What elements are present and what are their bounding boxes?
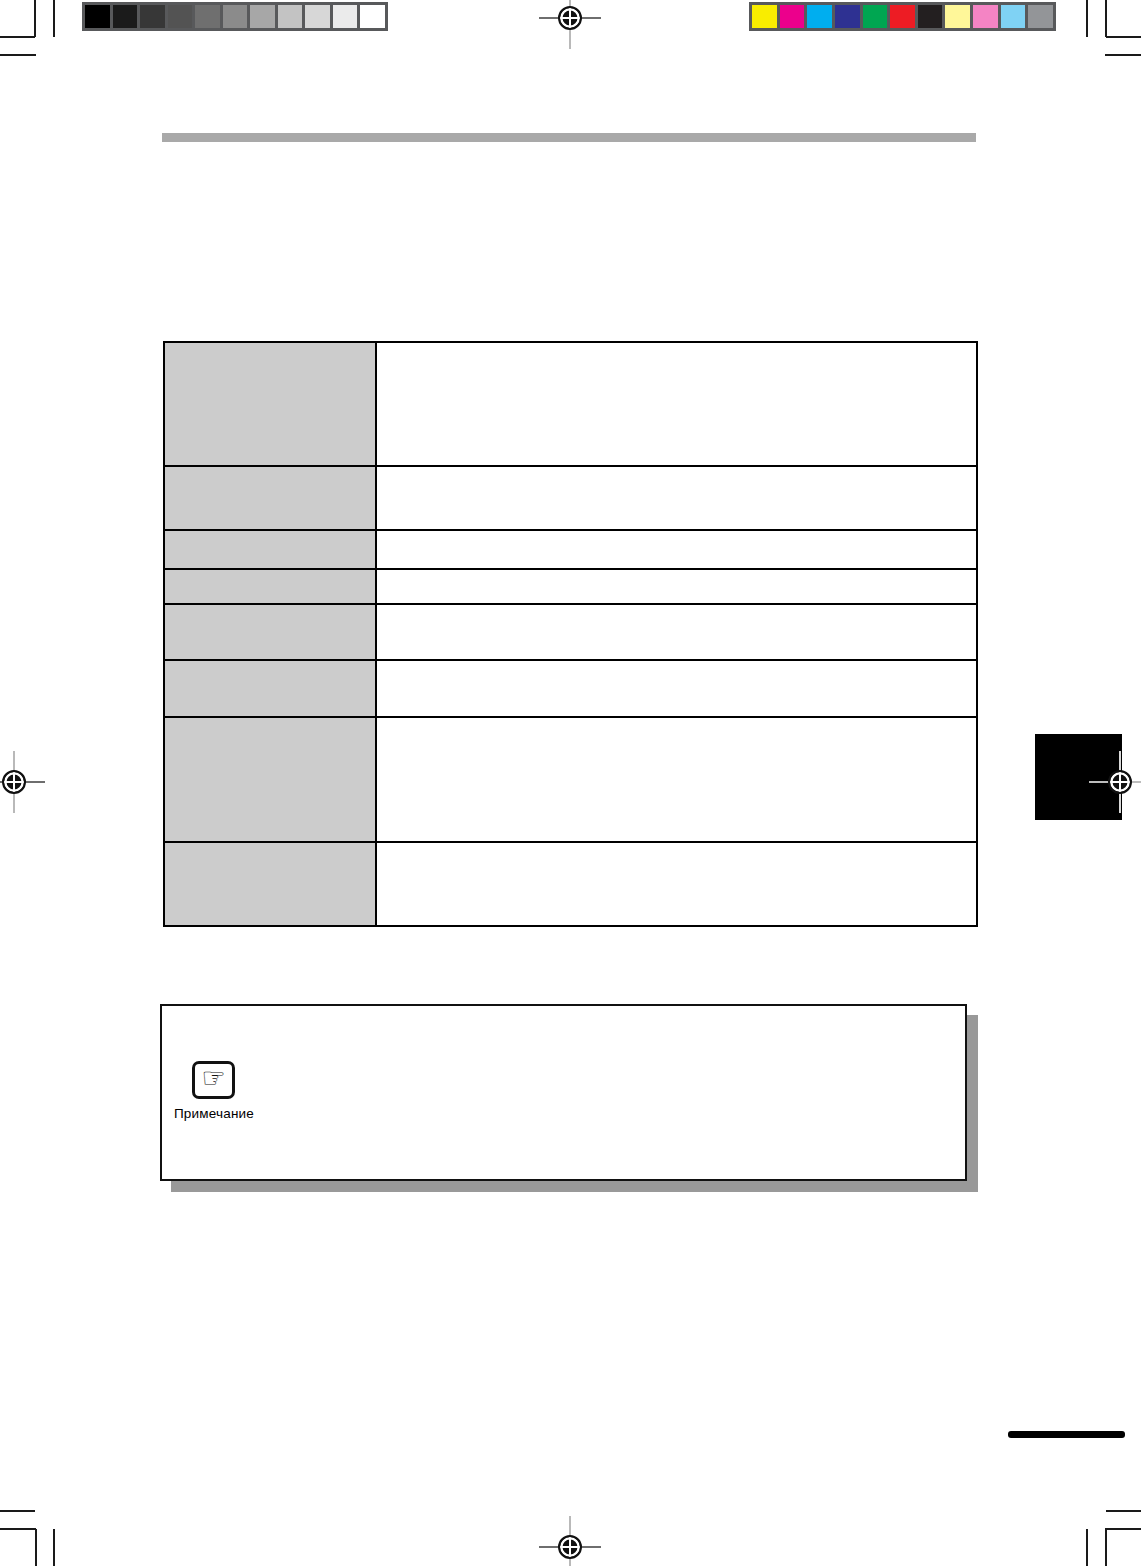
crop-mark	[1105, 1529, 1107, 1566]
table-label-cell	[165, 661, 377, 716]
registration-cross-icon	[0, 781, 45, 783]
calibration-swatch	[113, 5, 138, 28]
crop-mark	[1086, 0, 1088, 37]
calibration-swatch	[918, 5, 943, 28]
crop-mark	[53, 1529, 55, 1566]
table-row	[165, 843, 976, 925]
calibration-swatch	[945, 5, 970, 28]
table-label-cell	[165, 605, 377, 659]
crop-mark	[1105, 1528, 1141, 1530]
calibration-swatch	[890, 5, 915, 28]
pointing-hand-glyph: ☞	[201, 1065, 225, 1092]
calibration-swatch	[223, 5, 248, 28]
table-row	[165, 531, 976, 570]
registration-mark-left	[0, 760, 36, 804]
calibration-swatch	[250, 5, 275, 28]
chapter-side-tab	[1035, 734, 1122, 820]
grayscale-calibration-bar	[82, 2, 388, 31]
calibration-swatch	[780, 5, 805, 28]
calibration-swatch	[973, 5, 998, 28]
calibration-swatch	[807, 5, 832, 28]
table-value-cell	[377, 661, 976, 716]
note-label: Примечание	[162, 1106, 266, 1121]
crop-mark	[0, 1510, 35, 1512]
crop-mark	[35, 1529, 37, 1566]
crop-mark	[1086, 1529, 1088, 1566]
table-value-cell	[377, 718, 976, 841]
registration-cross-icon	[539, 1546, 601, 1548]
registration-target-icon	[558, 6, 582, 30]
table-row	[165, 343, 976, 467]
registration-target-icon	[558, 1535, 582, 1559]
registration-cross-icon	[569, 0, 571, 49]
table-label-cell	[165, 467, 377, 529]
table-value-cell	[377, 343, 976, 465]
table-row	[165, 467, 976, 531]
calibration-swatch	[168, 5, 193, 28]
table-value-cell	[377, 843, 976, 925]
table-row	[165, 718, 976, 843]
table-value-cell	[377, 467, 976, 529]
spec-table	[163, 341, 978, 927]
note-box: ☞ Примечание	[160, 1004, 967, 1181]
table-value-cell	[377, 531, 976, 568]
scanned-manual-page: ☞ Примечание	[0, 0, 1141, 1566]
registration-mark-bottom	[548, 1525, 592, 1566]
pointing-hand-icon: ☞	[192, 1061, 235, 1099]
footer-page-bar	[1008, 1431, 1125, 1438]
registration-cross-icon	[569, 1516, 571, 1566]
calibration-swatch	[333, 5, 358, 28]
table-label-cell	[165, 570, 377, 603]
calibration-swatch	[835, 5, 860, 28]
crop-mark	[1106, 36, 1141, 38]
crop-mark	[0, 1528, 36, 1530]
table-label-cell	[165, 843, 377, 925]
calibration-swatch	[752, 5, 777, 28]
table-value-cell	[377, 605, 976, 659]
calibration-swatch	[140, 5, 165, 28]
table-label-cell	[165, 531, 377, 568]
calibration-swatch	[360, 5, 385, 28]
table-value-cell	[377, 570, 976, 603]
crop-mark	[0, 54, 36, 56]
crop-mark	[0, 36, 35, 38]
calibration-swatch	[85, 5, 110, 28]
crop-mark	[34, 0, 36, 37]
color-calibration-bar	[749, 2, 1056, 31]
crop-mark	[1105, 0, 1107, 37]
calibration-swatch	[1028, 5, 1053, 28]
calibration-swatch	[195, 5, 220, 28]
calibration-swatch	[1001, 5, 1026, 28]
table-label-cell	[165, 343, 377, 465]
registration-cross-icon	[13, 751, 15, 813]
registration-mark-top	[548, 0, 592, 40]
crop-mark	[53, 0, 55, 37]
calibration-swatch	[278, 5, 303, 28]
table-row	[165, 605, 976, 661]
calibration-swatch	[863, 5, 888, 28]
crop-mark	[1105, 54, 1141, 56]
calibration-swatch	[305, 5, 330, 28]
registration-cross-icon	[539, 17, 601, 19]
table-label-cell	[165, 718, 377, 841]
table-row	[165, 570, 976, 605]
table-row	[165, 661, 976, 718]
crop-mark	[1106, 1510, 1141, 1512]
chapter-header-rule	[162, 133, 976, 142]
registration-target-icon	[2, 770, 26, 794]
